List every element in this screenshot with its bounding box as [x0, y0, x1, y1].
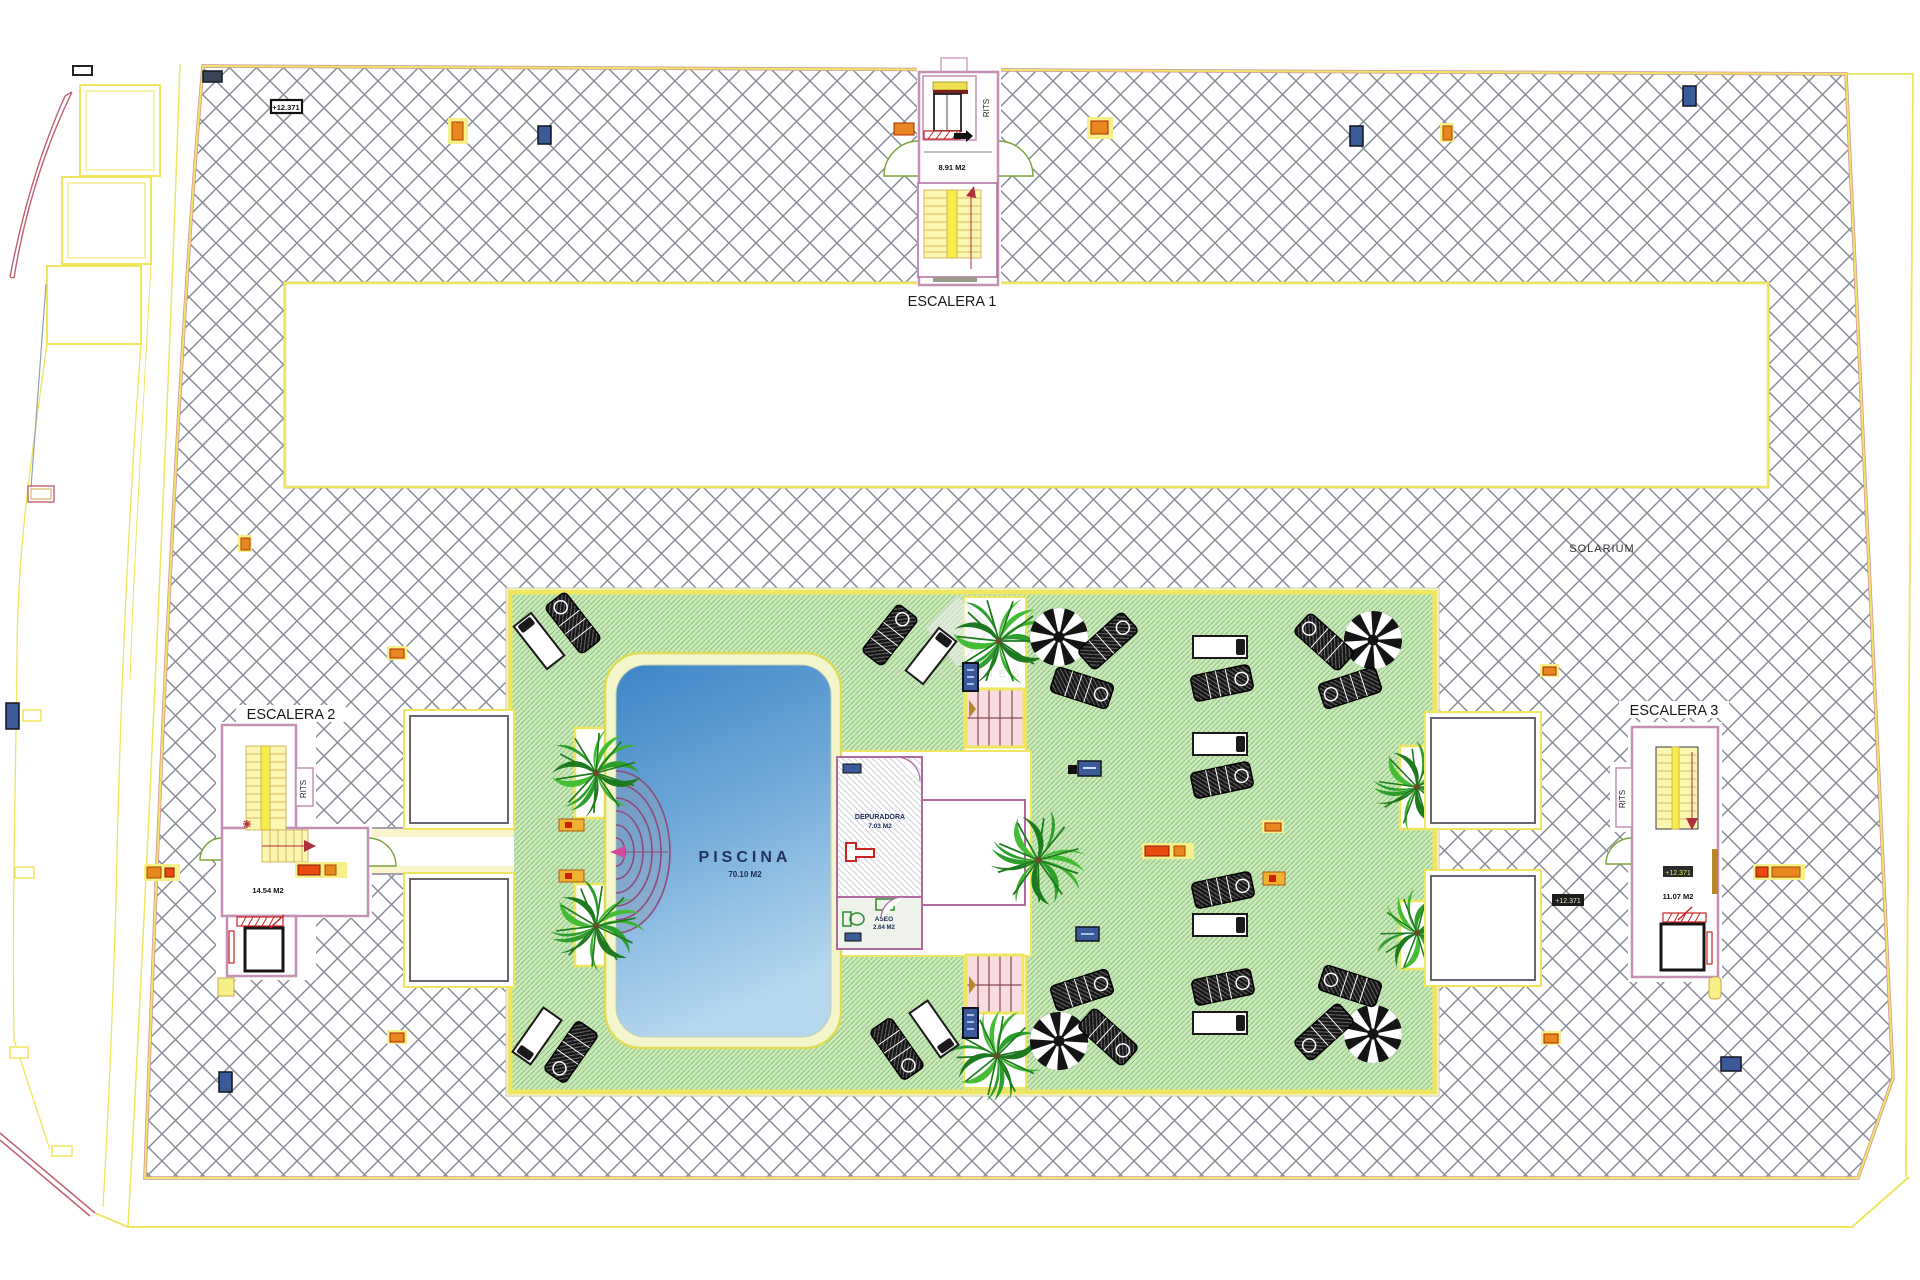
svg-text:+12.371: +12.371: [272, 103, 299, 112]
svg-text:70.10 M2: 70.10 M2: [728, 870, 762, 879]
svg-text:RITS: RITS: [299, 780, 308, 798]
svg-text:7.03 M2: 7.03 M2: [868, 823, 892, 830]
svg-text:DEPURADORA: DEPURADORA: [855, 814, 905, 821]
svg-text:PISCINA: PISCINA: [699, 849, 792, 866]
svg-text:2.64 M2: 2.64 M2: [873, 925, 895, 931]
svg-text:14.54 M2: 14.54 M2: [252, 886, 283, 895]
svg-text:ESCALERA 2: ESCALERA 2: [247, 707, 336, 723]
svg-text:ASEO: ASEO: [875, 916, 893, 923]
svg-text:RITS: RITS: [1618, 790, 1627, 808]
svg-text:SOLARIUM: SOLARIUM: [1569, 543, 1634, 555]
svg-text:8.91 M2: 8.91 M2: [938, 163, 965, 172]
svg-text:+12.371: +12.371: [1555, 898, 1581, 905]
svg-text:ESCALERA 1: ESCALERA 1: [908, 294, 997, 310]
svg-text:+12.371: +12.371: [1665, 870, 1691, 877]
svg-text:ESCALERA 3: ESCALERA 3: [1630, 703, 1719, 719]
svg-text:RITS: RITS: [982, 99, 991, 117]
svg-text:11.07 M2: 11.07 M2: [1663, 892, 1694, 901]
